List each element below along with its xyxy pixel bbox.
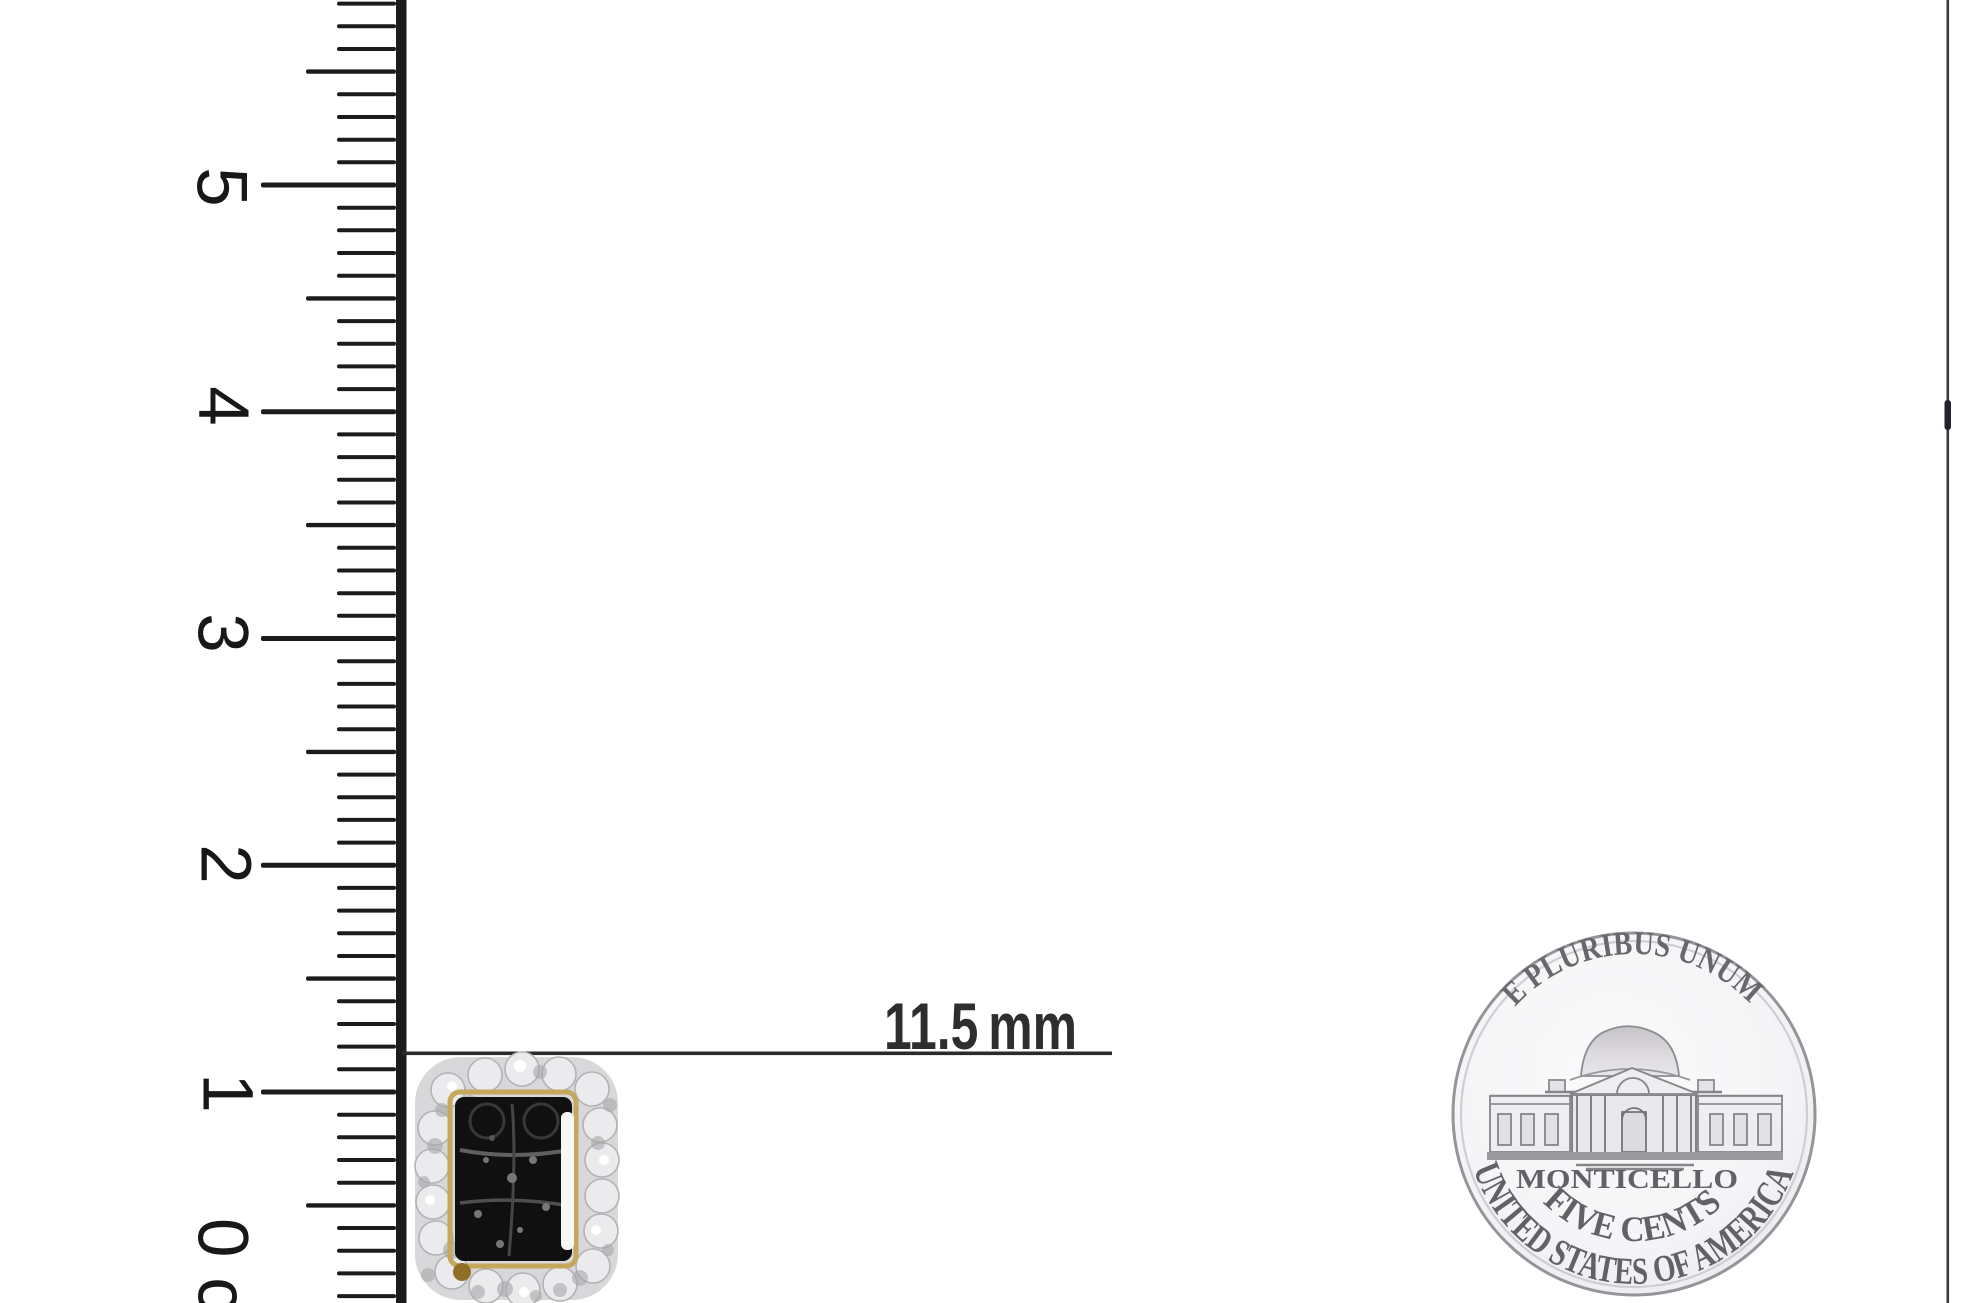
svg-text:0 cm: 0 cm [183, 1218, 262, 1303]
svg-text:2: 2 [186, 844, 265, 884]
svg-text:11.5 mm: 11.5 mm [884, 989, 1077, 1063]
svg-text:1: 1 [188, 1073, 267, 1113]
svg-text:3: 3 [183, 613, 262, 653]
svg-text:4: 4 [184, 386, 263, 426]
svg-text:5: 5 [182, 167, 261, 207]
